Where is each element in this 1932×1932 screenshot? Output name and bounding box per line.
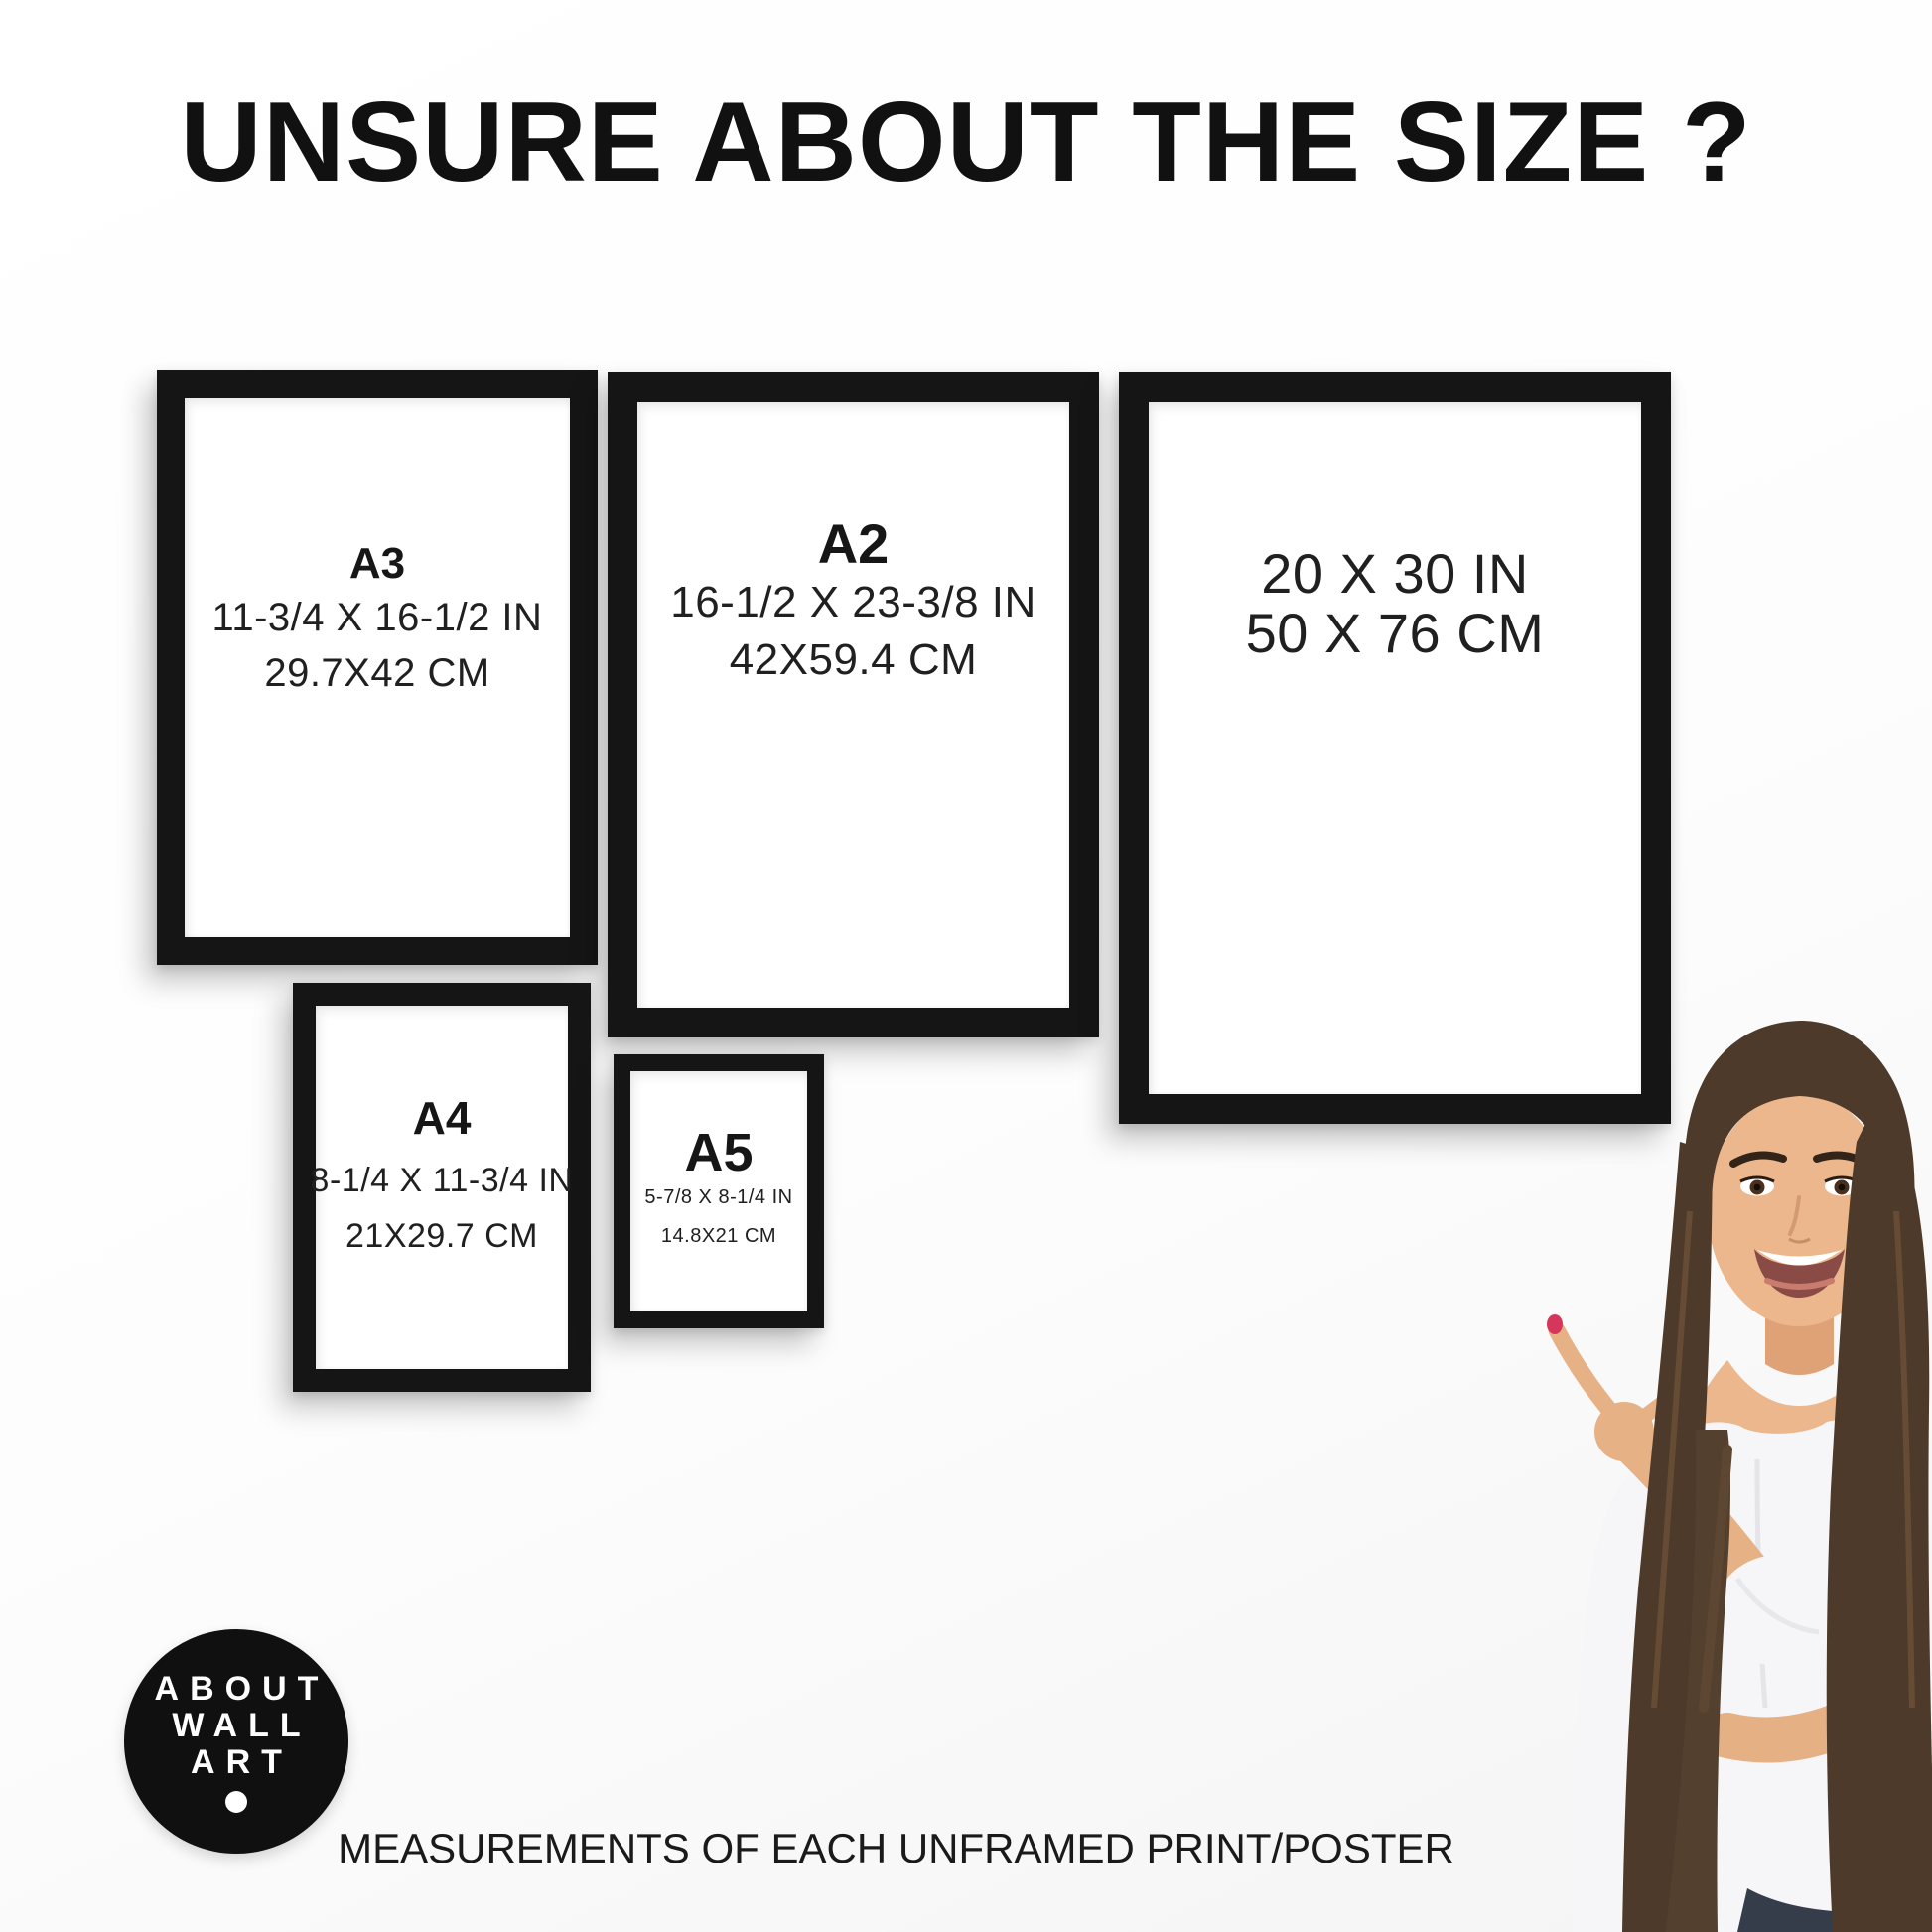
size-frame-a4: A4 8-1/4 X 11-3/4 IN 21X29.7 CM: [293, 983, 591, 1392]
frame-label: A4: [413, 1093, 472, 1143]
page-title: UNSURE ABOUT THE SIZE ?: [0, 77, 1932, 207]
size-frame-a5: A5 5-7/8 X 8-1/4 IN 14.8X21 CM: [614, 1054, 824, 1328]
size-guide-infographic: UNSURE ABOUT THE SIZE ? A3 11-3/4 X 16-1…: [0, 0, 1932, 1932]
footer-caption: MEASUREMENTS OF EACH UNFRAMED PRINT/POST…: [338, 1825, 1454, 1872]
brand-logo: ABOUT WALL ART: [124, 1629, 348, 1854]
frame-size-inches: 20 X 30 IN: [1261, 544, 1529, 604]
frame-size-cm: 29.7X42 CM: [264, 645, 489, 701]
frame-size-cm: 14.8X21 CM: [661, 1224, 776, 1248]
frame-size-cm: 42X59.4 CM: [730, 631, 978, 689]
woman-pointing-photo: [1430, 993, 1932, 1932]
logo-dot-icon: [225, 1791, 247, 1813]
logo-text-line: ART: [180, 1744, 293, 1781]
frame-size-cm: 21X29.7 CM: [345, 1217, 538, 1255]
frame-label: A2: [818, 514, 890, 574]
frame-size-cm: 50 X 76 CM: [1246, 604, 1545, 663]
frame-size-inches: 8-1/4 X 11-3/4 IN: [311, 1162, 574, 1199]
size-frame-a2: A2 16-1/2 X 23-3/8 IN 42X59.4 CM: [608, 372, 1099, 1037]
logo-text-line: ABOUT: [144, 1671, 330, 1708]
frame-size-inches: 11-3/4 X 16-1/2 IN: [212, 590, 543, 645]
frame-size-inches: 16-1/2 X 23-3/8 IN: [670, 574, 1036, 631]
red-nail: [1547, 1314, 1563, 1334]
frame-label: A3: [349, 538, 405, 590]
left-eye: [1740, 1177, 1774, 1196]
frame-size-inches: 5-7/8 X 8-1/4 IN: [644, 1185, 792, 1209]
size-frame-a3: A3 11-3/4 X 16-1/2 IN 29.7X42 CM: [157, 370, 598, 965]
logo-text-line: WALL: [161, 1708, 311, 1744]
frame-label: A5: [684, 1125, 753, 1180]
